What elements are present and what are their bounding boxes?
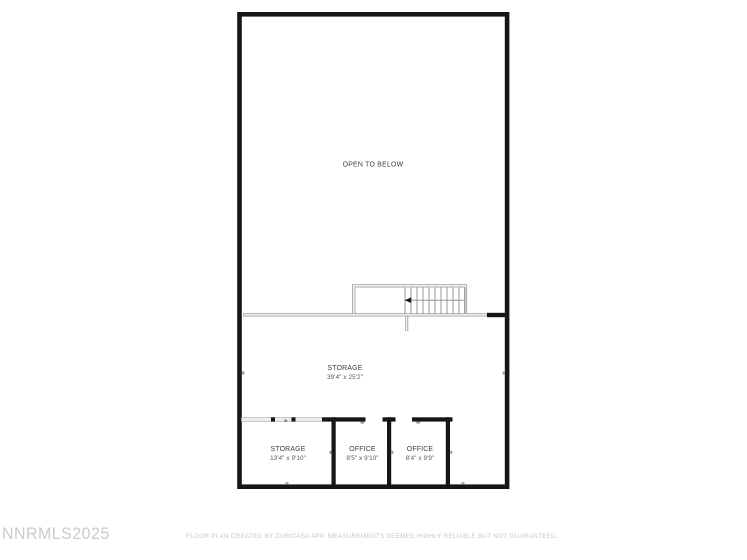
cubicasa-disclaimer: FLOOR PLAN CREATED BY CUBICASA APP. MEAS… bbox=[186, 533, 558, 540]
room-dimensions: 8'5" x 9'10" bbox=[346, 454, 378, 463]
outer-boundary-wall bbox=[240, 14, 508, 486]
stair-direction-arrow-icon bbox=[405, 297, 412, 303]
mls-watermark: NNRMLS2025 bbox=[2, 524, 110, 544]
room-name: OFFICE bbox=[406, 445, 435, 454]
floor-plan-page: OPEN TO BELOW STORAGE 39'4" x 25'2" STOR… bbox=[0, 0, 747, 560]
office-divider-wall bbox=[387, 417, 391, 489]
door-tick bbox=[361, 422, 365, 424]
room-dimensions: 8'4" x 9'9" bbox=[406, 454, 435, 463]
partition-dot bbox=[285, 420, 288, 422]
partition-post bbox=[271, 417, 275, 421]
dividing-wall-segment bbox=[322, 417, 366, 421]
room-dimensions: 13'4" x 9'10" bbox=[270, 454, 306, 463]
door-tick bbox=[417, 422, 421, 424]
room-name: OFFICE bbox=[346, 445, 378, 454]
room-name: STORAGE bbox=[327, 364, 363, 373]
room-label-storage-main: STORAGE 39'4" x 25'2" bbox=[327, 364, 363, 382]
landing-right-wall-stub bbox=[487, 313, 508, 317]
room-dimensions: 39'4" x 25'2" bbox=[327, 373, 363, 382]
measurement-ticks bbox=[242, 372, 505, 485]
office1-left-wall bbox=[332, 417, 336, 489]
floor-plan-drawing bbox=[0, 0, 747, 560]
room-label-storage-small: STORAGE 13'4" x 9'10" bbox=[270, 445, 306, 463]
room-label-office-2: OFFICE 8'4" x 9'9" bbox=[406, 445, 435, 463]
room-name: STORAGE bbox=[270, 445, 306, 454]
partition-post bbox=[292, 417, 296, 421]
glass-partition bbox=[242, 418, 323, 422]
office2-right-wall bbox=[446, 417, 450, 489]
staircase bbox=[243, 286, 508, 332]
open-to-below-label: OPEN TO BELOW bbox=[343, 162, 404, 169]
room-label-office-1: OFFICE 8'5" x 9'10" bbox=[346, 445, 378, 463]
